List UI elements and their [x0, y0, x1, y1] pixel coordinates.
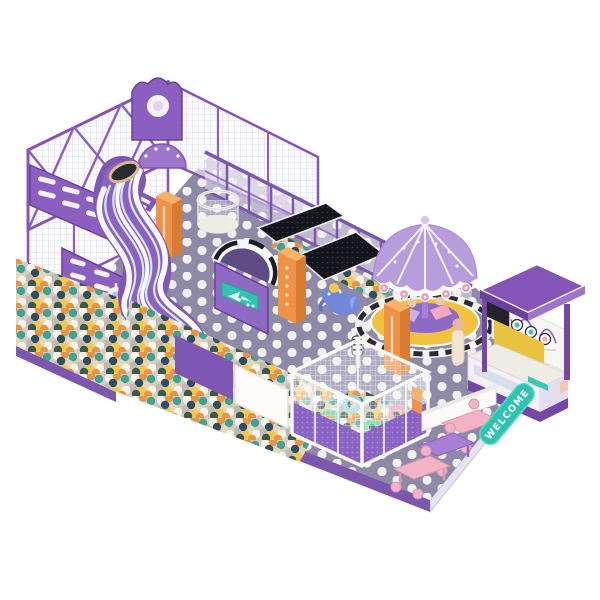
orange-shelf: [412, 386, 422, 414]
mascot-figure: [452, 319, 464, 365]
playground-render: WELCOME: [0, 0, 600, 600]
playground-scene: WELCOME: [0, 0, 600, 600]
kiosk-column-right: [564, 304, 570, 380]
kiosk-column-left: [482, 292, 487, 372]
carousel-canopy: [373, 215, 477, 302]
orange-pillar-tunnel: [278, 247, 306, 324]
decorative-top-panel: [132, 78, 182, 140]
